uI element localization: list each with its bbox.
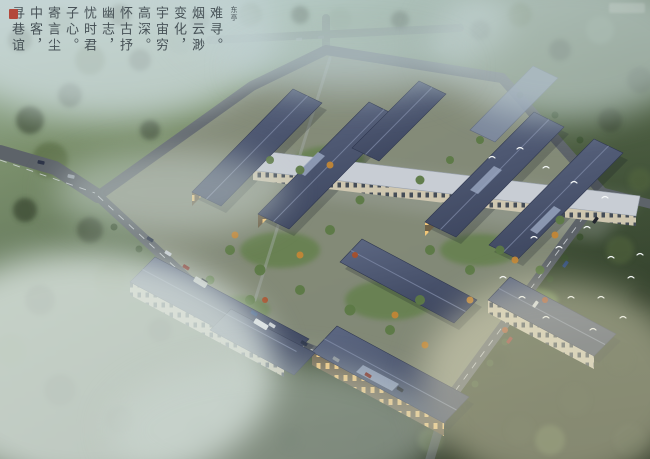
calligraphy-column: 子心。 bbox=[63, 6, 77, 54]
calligraphy-column: 烟云渺 bbox=[189, 6, 203, 54]
calligraphy-column: 寄言尘 bbox=[45, 6, 59, 54]
calligraphy-column: 变化， bbox=[171, 6, 185, 54]
calligraphy-column: 中客， bbox=[27, 6, 41, 54]
calligraphy-column: 难寻。 bbox=[207, 6, 221, 54]
calligraphy-column: 怀古抒 bbox=[117, 6, 131, 54]
calligraphy-signature: 东亭 bbox=[227, 6, 241, 22]
scene-canvas bbox=[0, 0, 650, 459]
calligraphy-inscription: 寻巷谊 中客， 寄言尘 子心。 忧时君 幽志， 怀古抒 高深。 宇宙穷 变化， … bbox=[9, 6, 241, 54]
calligraphy-column: 高深。 bbox=[135, 6, 149, 54]
calligraphy-column: 幽志， bbox=[99, 6, 113, 54]
calligraphy-column: 宇宙穷 bbox=[153, 6, 167, 54]
calligraphy-column: 忧时君 bbox=[81, 6, 95, 54]
signature-text: 东亭 bbox=[227, 6, 241, 22]
watermark bbox=[609, 3, 645, 13]
aerial-rendering: 寻巷谊 中客， 寄言尘 子心。 忧时君 幽志， 怀古抒 高深。 宇宙穷 变化， … bbox=[0, 0, 650, 459]
seal-stamp-icon bbox=[9, 9, 18, 19]
